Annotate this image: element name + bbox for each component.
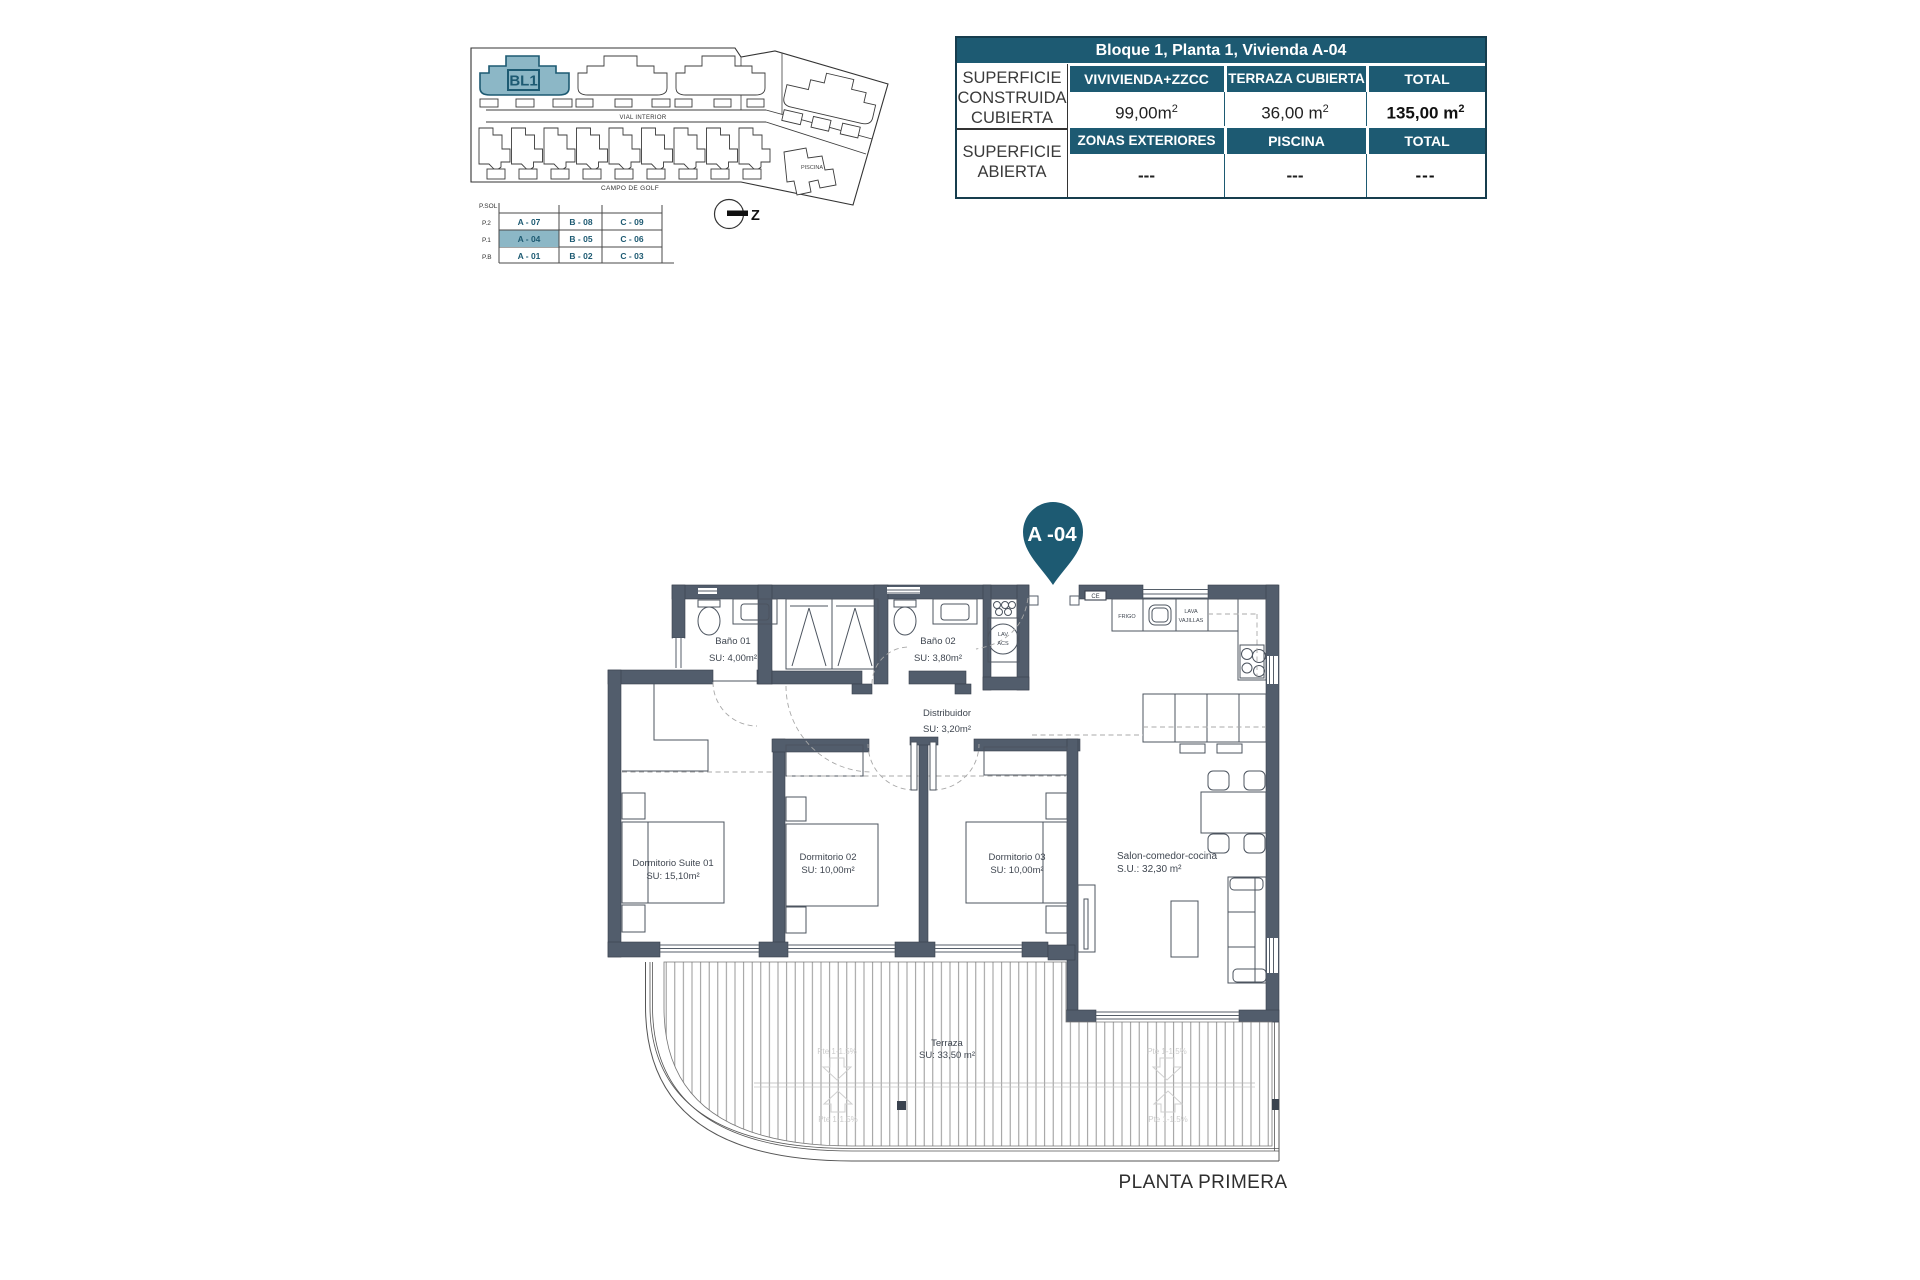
svg-text:SU: 33,50 m²: SU: 33,50 m² bbox=[919, 1050, 975, 1061]
svg-text:FRIGO: FRIGO bbox=[1118, 614, 1136, 620]
svg-text:P.1: P.1 bbox=[482, 237, 491, 244]
svg-text:A - 01: A - 01 bbox=[518, 251, 541, 261]
svg-text:Dormitorio 03: Dormitorio 03 bbox=[988, 852, 1045, 863]
svg-text:C - 09: C - 09 bbox=[620, 217, 643, 227]
svg-text:A - 04: A - 04 bbox=[518, 234, 541, 244]
svg-text:Pte 1-1.5%: Pte 1-1.5% bbox=[1148, 1115, 1188, 1124]
svg-text:Z: Z bbox=[751, 208, 760, 224]
svg-text:ACS: ACS bbox=[997, 641, 1009, 647]
svg-text:C - 03: C - 03 bbox=[620, 251, 643, 261]
svg-text:P.2: P.2 bbox=[482, 220, 491, 227]
svg-text:Baño 02: Baño 02 bbox=[920, 636, 955, 647]
svg-text:S.U.: 32,30 m²: S.U.: 32,30 m² bbox=[1117, 864, 1182, 875]
svg-text:Baño 01: Baño 01 bbox=[715, 636, 750, 647]
svg-text:Pte 1-1.5%: Pte 1-1.5% bbox=[1147, 1047, 1187, 1056]
svg-text:B - 02: B - 02 bbox=[569, 251, 592, 261]
svg-text:CAMPO DE GOLF: CAMPO DE GOLF bbox=[601, 185, 659, 192]
svg-text:Pte 1-1.5%: Pte 1-1.5% bbox=[818, 1115, 858, 1124]
svg-text:SU: 3,80m²: SU: 3,80m² bbox=[914, 653, 962, 664]
svg-text:VIAL INTERIOR: VIAL INTERIOR bbox=[619, 115, 666, 121]
svg-text:BL1: BL1 bbox=[509, 73, 537, 90]
svg-text:Distribuidor: Distribuidor bbox=[923, 708, 971, 719]
svg-text:LAV: LAV bbox=[998, 632, 1008, 638]
svg-text:C - 06: C - 06 bbox=[620, 234, 643, 244]
svg-text:SU: 4,00m²: SU: 4,00m² bbox=[709, 653, 757, 664]
svg-text:SU: 15,10m²: SU: 15,10m² bbox=[646, 871, 699, 882]
svg-text:LAVA: LAVA bbox=[1184, 609, 1198, 615]
svg-text:Dormitorio 02: Dormitorio 02 bbox=[799, 852, 856, 863]
svg-text:Pte 1-1.5%: Pte 1-1.5% bbox=[817, 1047, 857, 1056]
svg-text:P.B: P.B bbox=[482, 254, 492, 261]
svg-text:SU: 3,20m²: SU: 3,20m² bbox=[923, 724, 971, 735]
svg-text:B - 08: B - 08 bbox=[569, 217, 592, 227]
svg-text:PLANTA PRIMERA: PLANTA PRIMERA bbox=[1119, 1172, 1288, 1193]
svg-text:Terraza: Terraza bbox=[931, 1038, 963, 1049]
svg-text:Salon-comedor-cocina: Salon-comedor-cocina bbox=[1117, 851, 1217, 862]
svg-text:A -04: A -04 bbox=[1027, 523, 1077, 546]
svg-text:SU: 10,00m²: SU: 10,00m² bbox=[990, 865, 1043, 876]
svg-text:P.SOL: P.SOL bbox=[479, 203, 498, 210]
svg-text:VAJILLAS: VAJILLAS bbox=[1179, 618, 1204, 624]
svg-text:Dormitorio Suite 01: Dormitorio Suite 01 bbox=[632, 858, 713, 869]
svg-text:CE: CE bbox=[1091, 594, 1099, 600]
svg-text:A - 07: A - 07 bbox=[518, 217, 541, 227]
svg-text:B - 05: B - 05 bbox=[569, 234, 592, 244]
svg-text:SU: 10,00m²: SU: 10,00m² bbox=[801, 865, 854, 876]
svg-text:PISCINA: PISCINA bbox=[801, 165, 823, 171]
